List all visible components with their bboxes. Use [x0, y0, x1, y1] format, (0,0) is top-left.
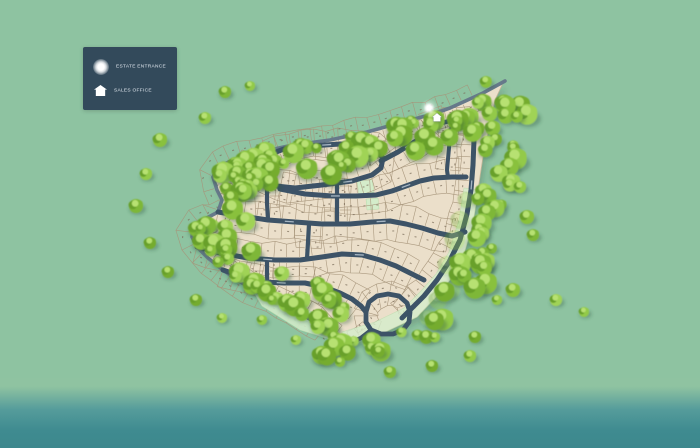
water	[0, 378, 700, 448]
legend-label-sales-office: SALES OFFICE	[114, 88, 152, 93]
estate-map-scene: ESTATE ENTRANCE SALES OFFICE	[0, 0, 700, 448]
legend-item-sales-office: SALES OFFICE	[93, 82, 177, 100]
legend-label-estate-entrance: ESTATE ENTRANCE	[116, 64, 166, 69]
house-icon	[94, 85, 107, 96]
glow-circle-icon	[93, 59, 109, 75]
legend-item-estate-entrance: ESTATE ENTRANCE	[93, 58, 177, 76]
map-legend: ESTATE ENTRANCE SALES OFFICE	[83, 47, 177, 110]
